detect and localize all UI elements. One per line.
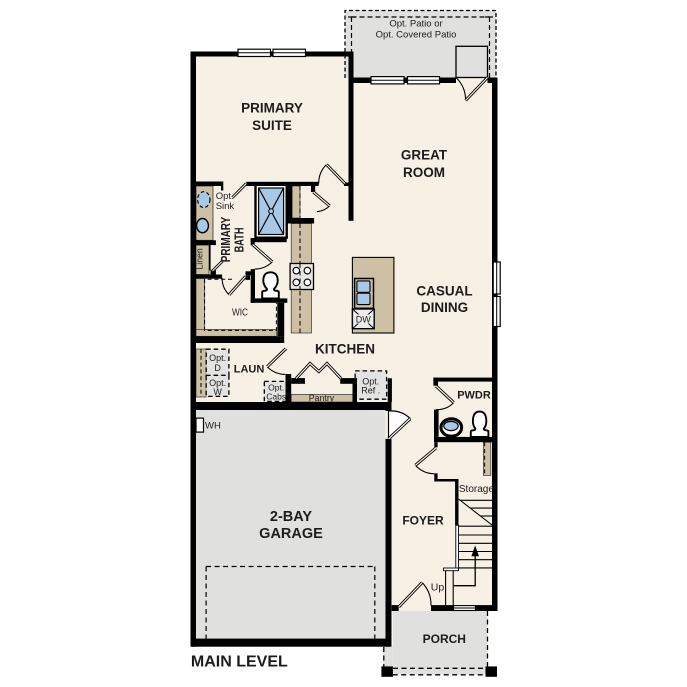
svg-text:D: D — [214, 363, 221, 373]
svg-text:Up: Up — [431, 582, 445, 594]
svg-text:Opt. Covered Patio: Opt. Covered Patio — [376, 30, 457, 41]
svg-text:GARAGE: GARAGE — [259, 526, 323, 542]
svg-text:W: W — [213, 387, 222, 397]
svg-text:PRIMARY: PRIMARY — [241, 101, 303, 116]
svg-text:Opt. Patio or: Opt. Patio or — [389, 19, 442, 30]
svg-text:SUITE: SUITE — [252, 118, 292, 133]
svg-text:Cabs: Cabs — [266, 391, 286, 401]
svg-text:FOYER: FOYER — [402, 513, 444, 527]
svg-text:PORCH: PORCH — [423, 632, 466, 646]
svg-text:Sink: Sink — [216, 201, 235, 212]
svg-text:ROOM: ROOM — [403, 165, 445, 180]
svg-text:MAIN LEVEL: MAIN LEVEL — [191, 653, 288, 670]
svg-text:GREAT: GREAT — [401, 148, 448, 163]
svg-text:PRIMARY: PRIMARY — [219, 216, 233, 262]
svg-text:CASUAL: CASUAL — [416, 284, 472, 299]
svg-text:LAUN: LAUN — [234, 363, 265, 375]
svg-text:WIC: WIC — [232, 307, 248, 319]
svg-text:Opt.: Opt. — [209, 353, 226, 363]
svg-text:DINING: DINING — [421, 300, 468, 315]
svg-text:Storage: Storage — [459, 484, 494, 495]
svg-text:WH: WH — [205, 420, 221, 431]
svg-text:PWDR: PWDR — [457, 389, 491, 401]
svg-text:Ref .: Ref . — [361, 386, 380, 396]
svg-text:Pantry: Pantry — [309, 393, 335, 403]
svg-text:BATH: BATH — [232, 227, 246, 252]
svg-text:2-BAY: 2-BAY — [270, 509, 313, 525]
svg-text:DW: DW — [356, 314, 371, 324]
svg-text:KITCHEN: KITCHEN — [315, 342, 375, 357]
